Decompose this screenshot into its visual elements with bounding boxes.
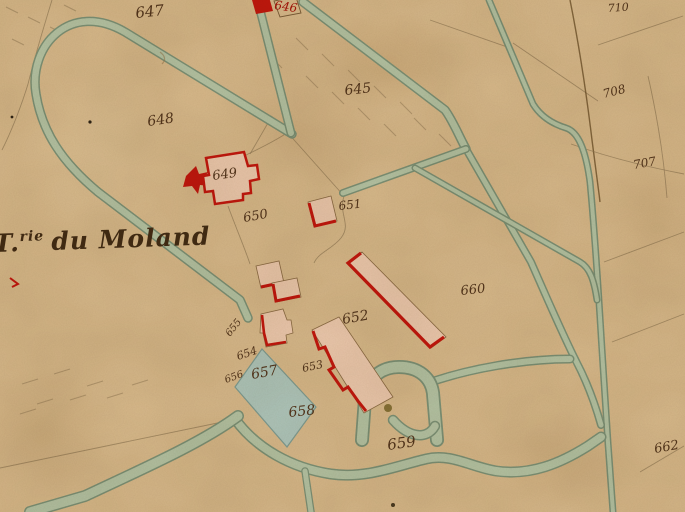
paper-texture	[0, 0, 685, 512]
cadastral-map: 647 646 645 648 649 650 651 652 653 654 …	[0, 0, 685, 512]
map-canvas[interactable]: 647 646 645 648 649 650 651 652 653 654 …	[0, 0, 685, 512]
paper-grain-layer	[0, 0, 685, 512]
